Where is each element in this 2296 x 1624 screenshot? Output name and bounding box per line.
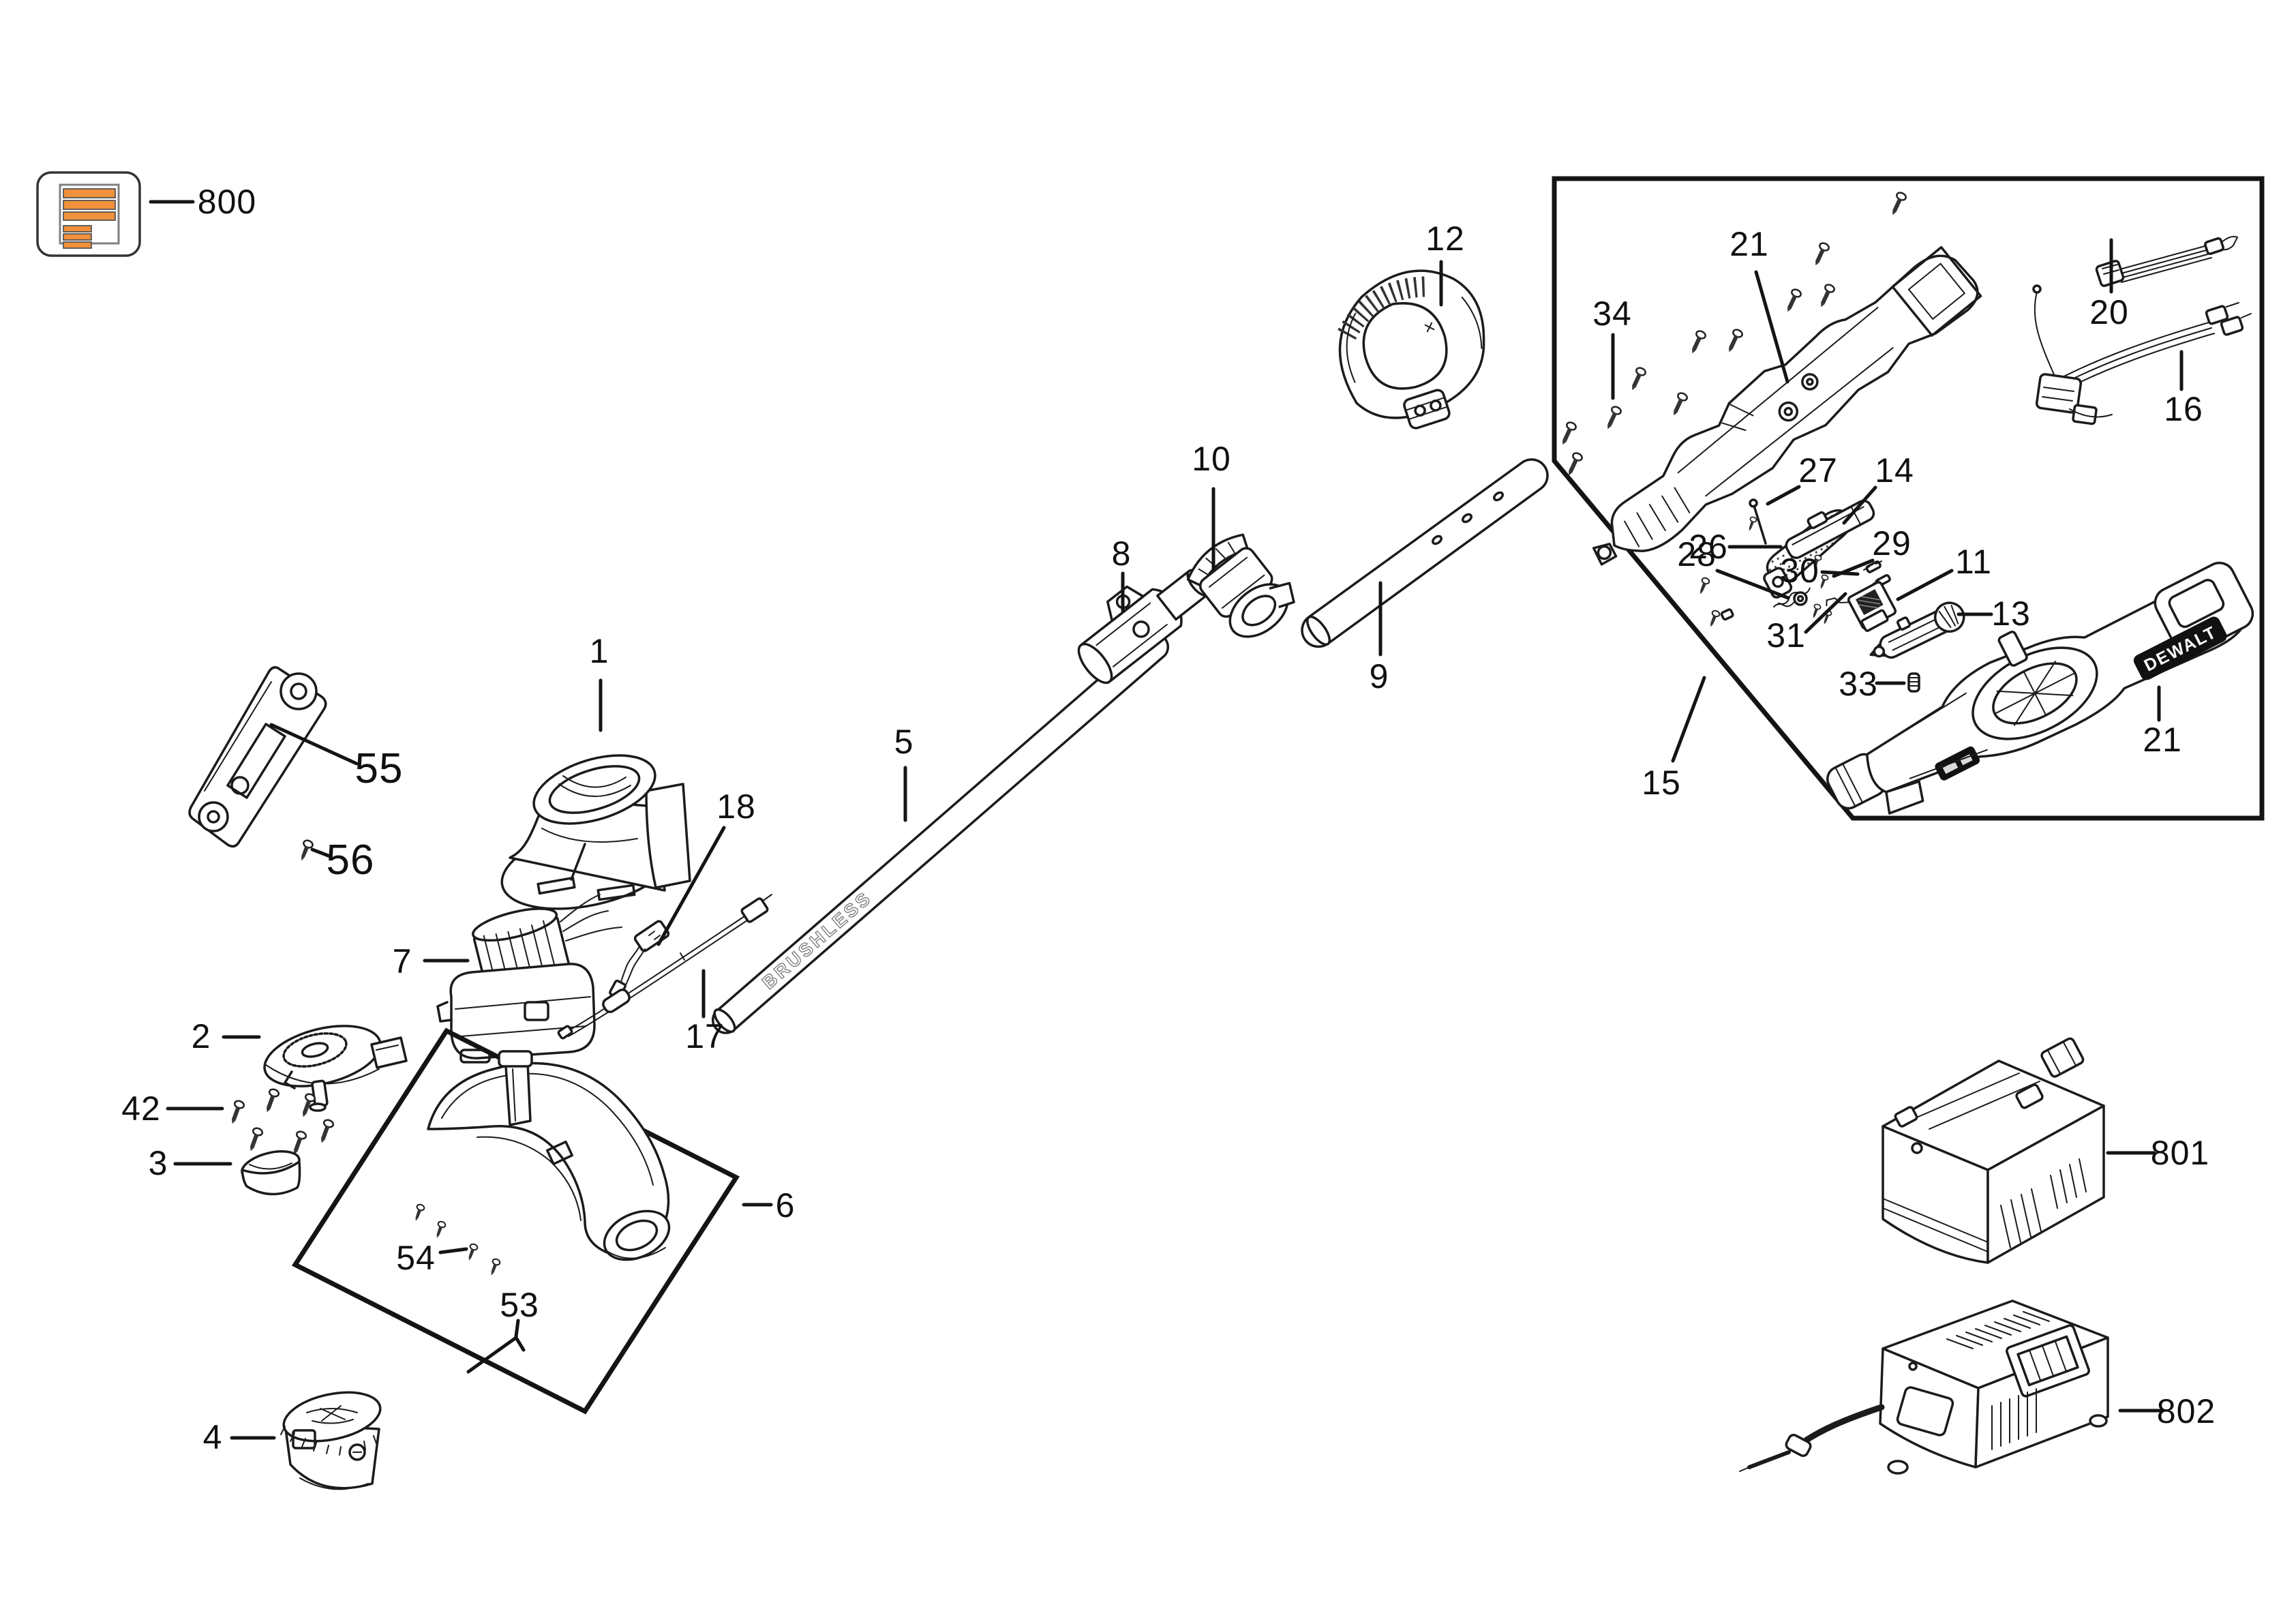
part-label-33: 33 [1839, 667, 1878, 701]
part-20-ribbon-cable [2096, 237, 2237, 287]
part-label-42: 42 [121, 1092, 161, 1126]
part-label-802: 802 [2157, 1394, 2216, 1428]
part-10-clamp [1182, 524, 1304, 650]
part-label-31: 31 [1766, 618, 1806, 652]
part-label-5: 5 [894, 725, 914, 759]
part-2-spool-base [258, 1015, 406, 1111]
part-label-55: 55 [355, 748, 404, 790]
part-label-9: 9 [1370, 659, 1389, 693]
part-33-spring [1909, 674, 1919, 691]
part-801-battery [1883, 1037, 2104, 1263]
part-label-56: 56 [327, 839, 375, 882]
part-55-hanger-bracket [190, 667, 326, 847]
part-label-29: 29 [1872, 526, 1912, 560]
shaft-marking-text: BRUSHLESS [758, 887, 876, 993]
part-label-801: 801 [2151, 1136, 2209, 1170]
part-31-11-switch-block [1824, 574, 1898, 642]
part-label-18: 18 [716, 790, 756, 824]
part-label-10: 10 [1192, 442, 1231, 476]
part-label-1: 1 [590, 634, 609, 668]
part-21-housing-upper [1571, 233, 1985, 590]
part-label-16: 16 [2164, 392, 2203, 426]
part-label-11: 11 [1955, 545, 1992, 579]
diagram-artwork: BRUSHLESS [0, 0, 2296, 1624]
part-5-shaft-tube: BRUSHLESS [711, 634, 1168, 1035]
part-3-felt-ring [239, 1146, 303, 1194]
part-4-spool-cap [280, 1385, 385, 1490]
part-label-54: 54 [396, 1241, 436, 1275]
part-7-motor-assembly [438, 894, 622, 1062]
part-label-7: 7 [393, 944, 412, 978]
part-6-guard [428, 1051, 677, 1269]
part-label-21-bottom: 21 [2143, 723, 2182, 757]
parts-diagram-canvas: BRUSHLESS [0, 0, 2296, 1624]
part-label-2: 2 [192, 1019, 211, 1053]
part-802-charger [1740, 1301, 2108, 1473]
part-label-17: 17 [685, 1019, 725, 1053]
part-label-14: 14 [1875, 453, 1914, 487]
part-label-27: 27 [1798, 453, 1838, 487]
part-label-30: 30 [1780, 554, 1819, 588]
part-label-13: 13 [1991, 597, 2031, 631]
part-label-3: 3 [149, 1146, 168, 1180]
part-label-8: 8 [1112, 537, 1132, 571]
part-label-21-top: 21 [1729, 227, 1769, 261]
part-label-4: 4 [203, 1420, 223, 1454]
part-9-upper-tube [1302, 460, 1547, 648]
part-label-34: 34 [1592, 297, 1632, 331]
part-label-26: 26 [1689, 530, 1728, 564]
part-label-53: 53 [500, 1288, 539, 1322]
part-label-800: 800 [198, 185, 256, 219]
part-label-12: 12 [1425, 222, 1465, 256]
part-12-aux-handle [1320, 254, 1509, 445]
part-label-15: 15 [1642, 766, 1681, 800]
part-16-wiring-harness [2034, 286, 2251, 424]
part-label-20: 20 [2089, 295, 2129, 329]
part-label-6: 6 [776, 1188, 796, 1222]
manual-document-icon [37, 172, 140, 256]
part-1-motor-housing [494, 742, 690, 922]
